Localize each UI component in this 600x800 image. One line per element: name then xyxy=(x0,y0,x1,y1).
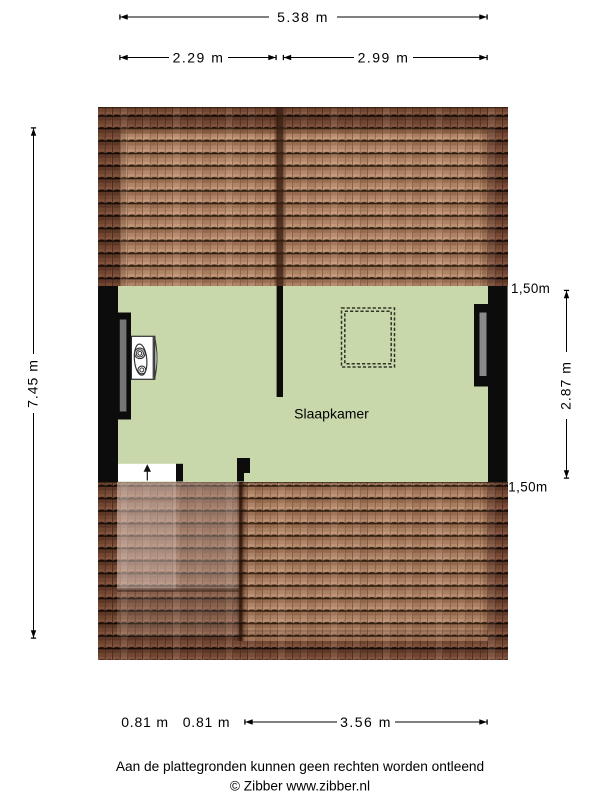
svg-text:2.29 m: 2.29 m xyxy=(173,49,225,65)
svg-text:3.56 m: 3.56 m xyxy=(340,714,392,730)
svg-text:© Zibber www.zibber.nl: © Zibber www.zibber.nl xyxy=(230,779,370,794)
svg-text:2.87 m: 2.87 m xyxy=(558,361,574,410)
svg-text:Slaapkamer: Slaapkamer xyxy=(294,406,369,422)
svg-text:0.81 m: 0.81 m xyxy=(183,714,231,730)
svg-text:2.99 m: 2.99 m xyxy=(358,49,410,65)
svg-text:1,50m: 1,50m xyxy=(511,281,550,296)
svg-text:7.45 m: 7.45 m xyxy=(25,359,41,408)
svg-text:Aan de plattegronden kunnen ge: Aan de plattegronden kunnen geen rechten… xyxy=(116,759,484,774)
svg-text:5.38 m: 5.38 m xyxy=(277,9,329,25)
svg-text:1,50m: 1,50m xyxy=(508,479,547,494)
svg-text:0.81 m: 0.81 m xyxy=(121,714,169,730)
